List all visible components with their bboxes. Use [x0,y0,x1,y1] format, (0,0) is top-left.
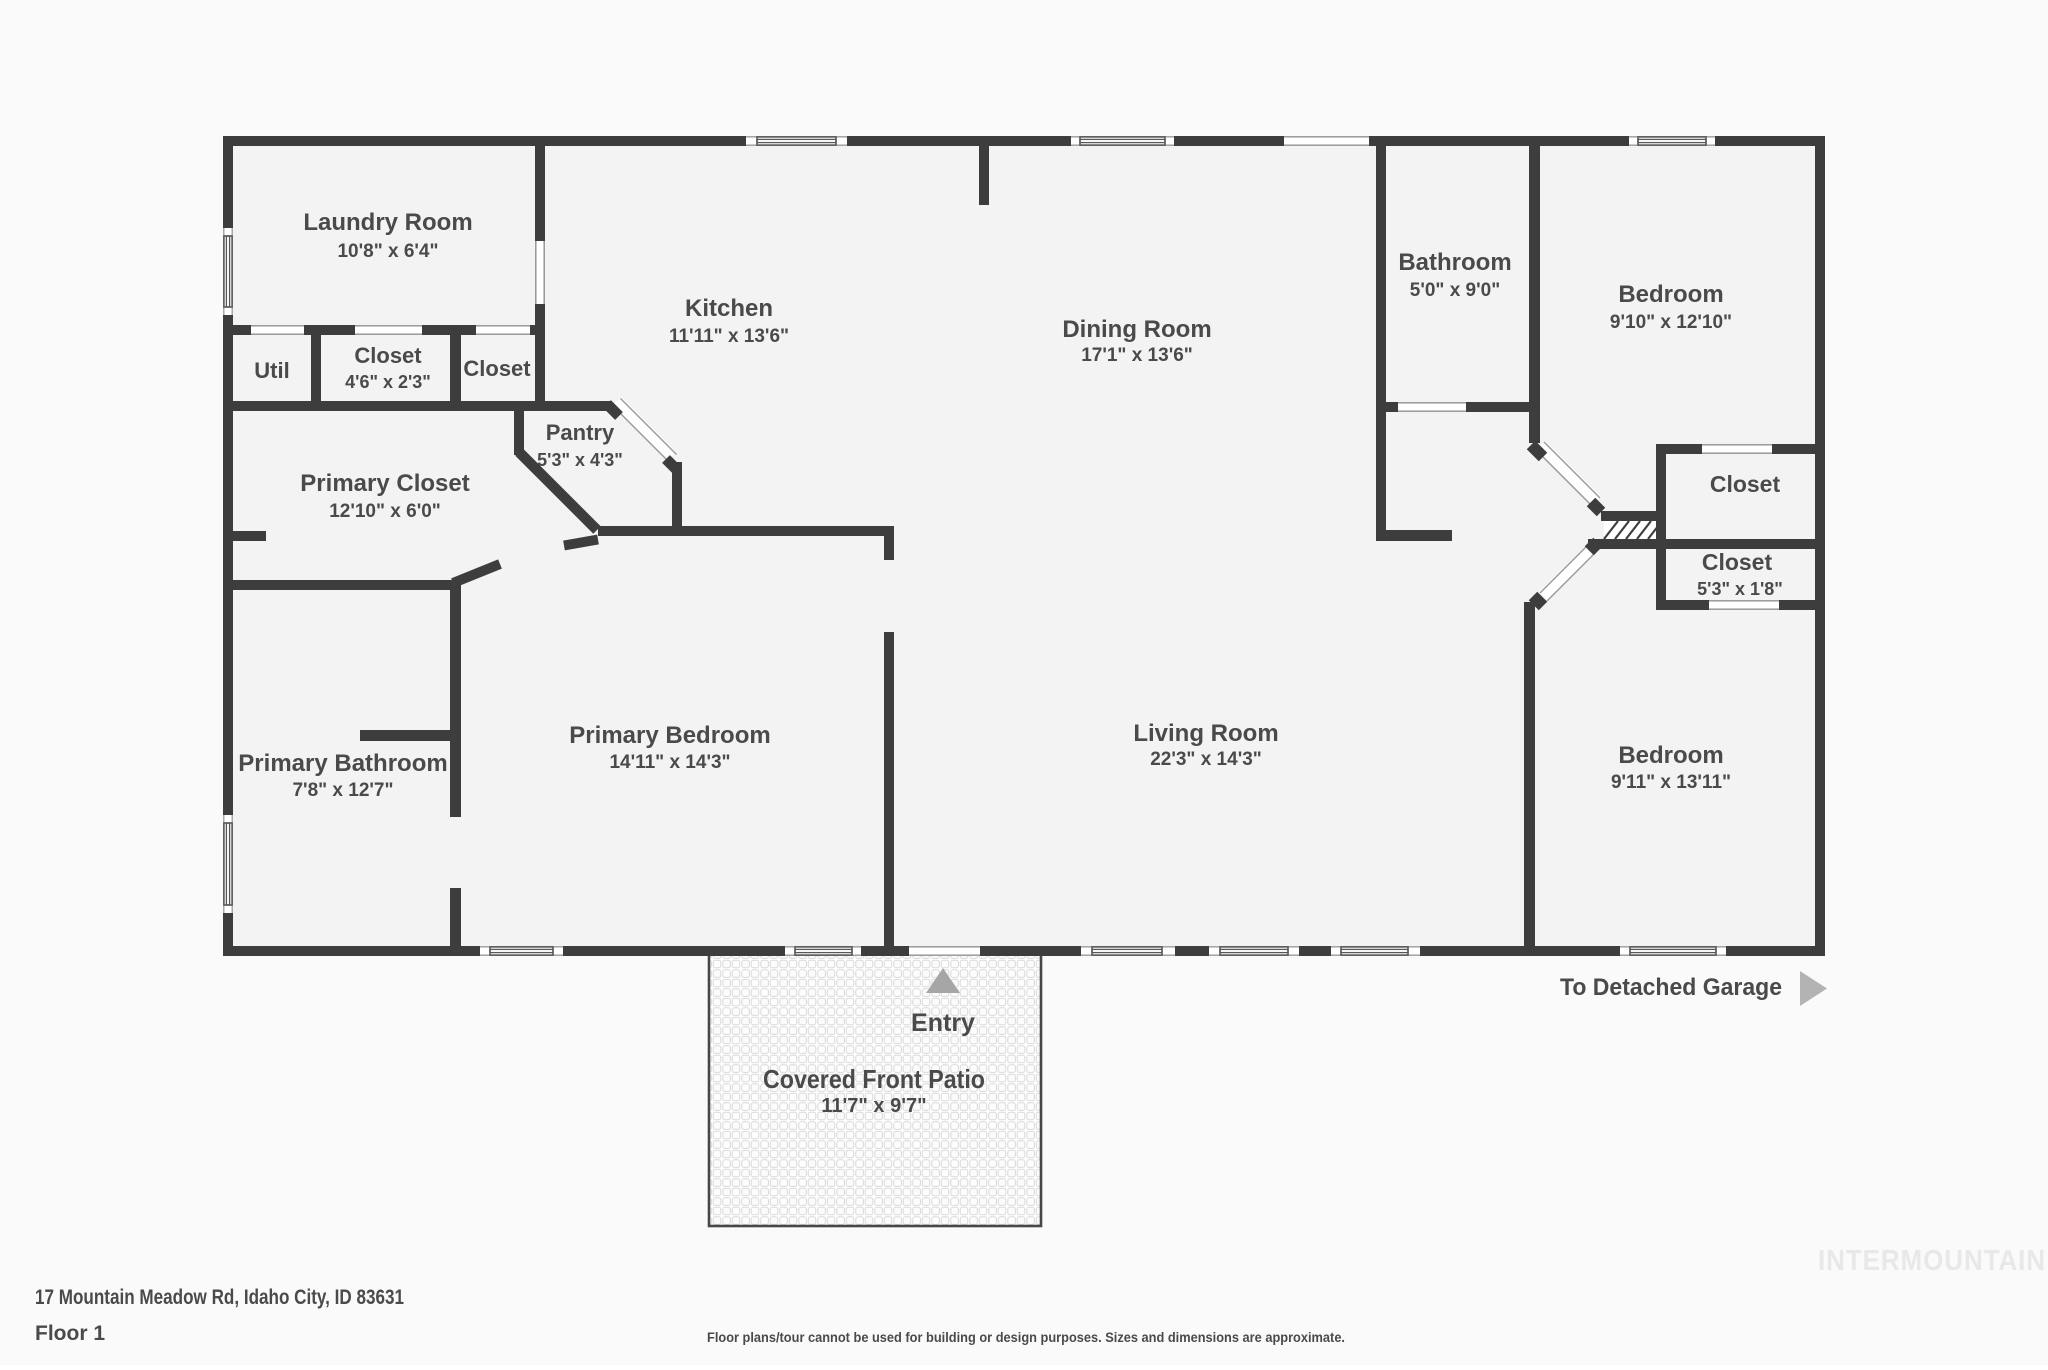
svg-text:11'7" x 9'7": 11'7" x 9'7" [821,1095,926,1117]
svg-text:Bedroom: Bedroom [1618,742,1723,769]
svg-text:Pantry: Pantry [546,420,615,445]
svg-text:Kitchen: Kitchen [685,295,773,322]
svg-text:Closet: Closet [463,356,531,381]
svg-text:Bathroom: Bathroom [1398,249,1511,276]
svg-text:Closet: Closet [1702,549,1773,575]
svg-text:7'8" x 12'7": 7'8" x 12'7" [292,780,393,801]
svg-text:INTERMOUNTAIN: INTERMOUNTAIN [1818,1245,2046,1277]
svg-text:Living Room: Living Room [1133,720,1278,747]
svg-text:4'6" x 2'3": 4'6" x 2'3" [345,372,431,392]
svg-text:Primary Closet: Primary Closet [300,470,469,497]
svg-text:Bedroom: Bedroom [1618,281,1723,308]
svg-text:5'3" x 4'3": 5'3" x 4'3" [537,450,623,470]
svg-text:Laundry Room: Laundry Room [303,209,472,236]
svg-text:22'3" x 14'3": 22'3" x 14'3" [1150,749,1262,770]
svg-text:14'11" x 14'3": 14'11" x 14'3" [609,752,730,773]
svg-text:Closet: Closet [354,343,422,368]
svg-text:Util: Util [254,358,289,383]
svg-text:Covered Front Patio: Covered Front Patio [763,1064,985,1094]
svg-text:9'11" x 13'11": 9'11" x 13'11" [1611,772,1731,793]
svg-text:Floor 1: Floor 1 [35,1322,105,1345]
svg-text:To Detached Garage: To Detached Garage [1560,974,1782,1001]
svg-text:12'10" x 6'0": 12'10" x 6'0" [329,501,441,522]
svg-text:9'10" x 12'10": 9'10" x 12'10" [1610,312,1732,333]
svg-text:10'8" x 6'4": 10'8" x 6'4" [337,241,438,262]
svg-text:17'1" x 13'6": 17'1" x 13'6" [1081,345,1193,366]
svg-text:5'3" x 1'8": 5'3" x 1'8" [1697,579,1783,599]
svg-text:17 Mountain Meadow Rd, Idaho C: 17 Mountain Meadow Rd, Idaho City, ID 83… [35,1286,404,1309]
svg-text:Primary Bedroom: Primary Bedroom [569,722,770,749]
svg-text:Closet: Closet [1710,471,1781,497]
svg-text:Entry: Entry [911,1009,975,1037]
svg-text:5'0" x 9'0": 5'0" x 9'0" [1410,280,1500,301]
svg-text:Floor plans/tour cannot be use: Floor plans/tour cannot be used for buil… [707,1330,1345,1345]
svg-text:Primary Bathroom: Primary Bathroom [238,750,447,777]
svg-text:11'11" x 13'6": 11'11" x 13'6" [669,326,789,347]
svg-text:Dining Room: Dining Room [1062,316,1211,343]
